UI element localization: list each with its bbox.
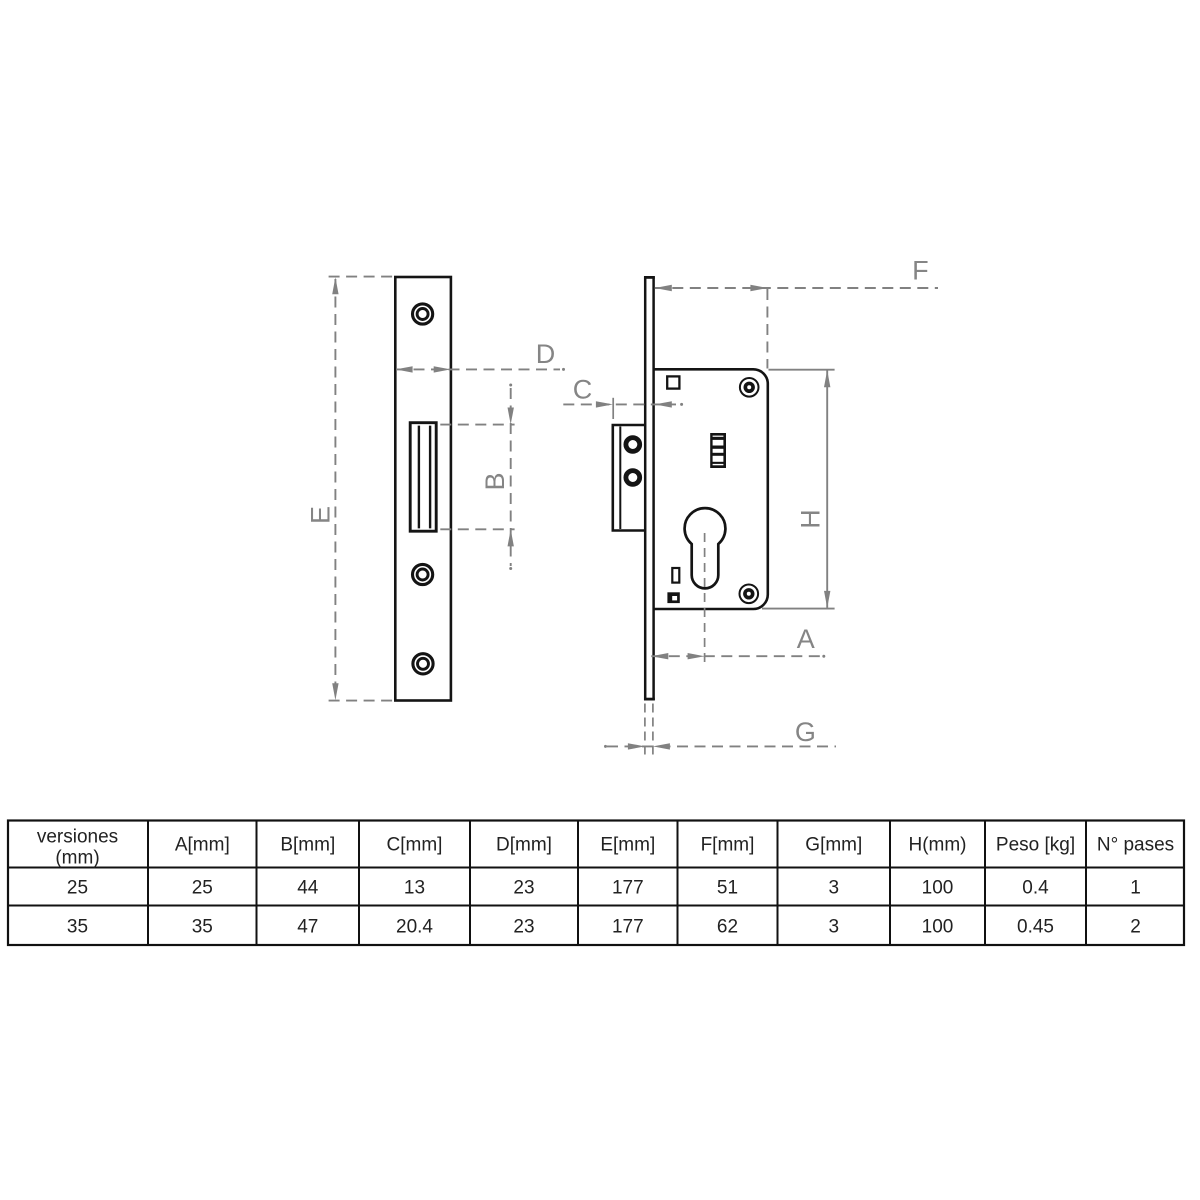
svg-text:23: 23 (513, 917, 534, 938)
svg-text:F: F (912, 255, 929, 285)
svg-text:20.4: 20.4 (396, 917, 433, 938)
svg-text:E[mm]: E[mm] (600, 835, 655, 856)
svg-text:23: 23 (513, 878, 534, 899)
svg-text:N° pases: N° pases (1097, 835, 1174, 856)
svg-text:100: 100 (922, 917, 954, 938)
svg-text:Peso [kg]: Peso [kg] (996, 835, 1075, 856)
svg-text:G[mm]: G[mm] (805, 835, 862, 856)
svg-text:177: 177 (612, 878, 644, 899)
svg-text:H(mm): H(mm) (908, 835, 966, 856)
svg-text:A[mm]: A[mm] (175, 835, 230, 856)
svg-text:D: D (536, 339, 556, 369)
svg-text:B: B (480, 472, 510, 490)
svg-text:D[mm]: D[mm] (496, 835, 552, 856)
svg-text:0.4: 0.4 (1022, 878, 1049, 899)
svg-text:100: 100 (922, 878, 954, 899)
svg-text:A: A (797, 624, 815, 654)
svg-text:G: G (795, 717, 816, 747)
svg-text:3: 3 (829, 878, 840, 899)
svg-text:0.45: 0.45 (1017, 917, 1054, 938)
svg-text:35: 35 (67, 917, 88, 938)
svg-text:versiones: versiones (37, 827, 118, 848)
svg-text:44: 44 (297, 878, 319, 899)
svg-text:C[mm]: C[mm] (387, 835, 443, 856)
svg-text:25: 25 (67, 878, 88, 899)
svg-text:F[mm]: F[mm] (701, 835, 755, 856)
svg-text:177: 177 (612, 917, 644, 938)
svg-text:35: 35 (192, 917, 213, 938)
svg-text:25: 25 (192, 878, 213, 899)
svg-text:47: 47 (297, 917, 318, 938)
svg-text:62: 62 (717, 917, 738, 938)
svg-text:51: 51 (717, 878, 738, 899)
svg-text:B[mm]: B[mm] (280, 835, 335, 856)
svg-text:3: 3 (829, 917, 840, 938)
svg-text:H: H (796, 509, 826, 529)
svg-text:2: 2 (1130, 917, 1141, 938)
svg-text:E: E (306, 506, 336, 524)
svg-text:1: 1 (1130, 878, 1141, 899)
svg-text:C: C (573, 375, 593, 405)
svg-text:13: 13 (404, 878, 425, 899)
svg-text:(mm): (mm) (55, 848, 99, 869)
